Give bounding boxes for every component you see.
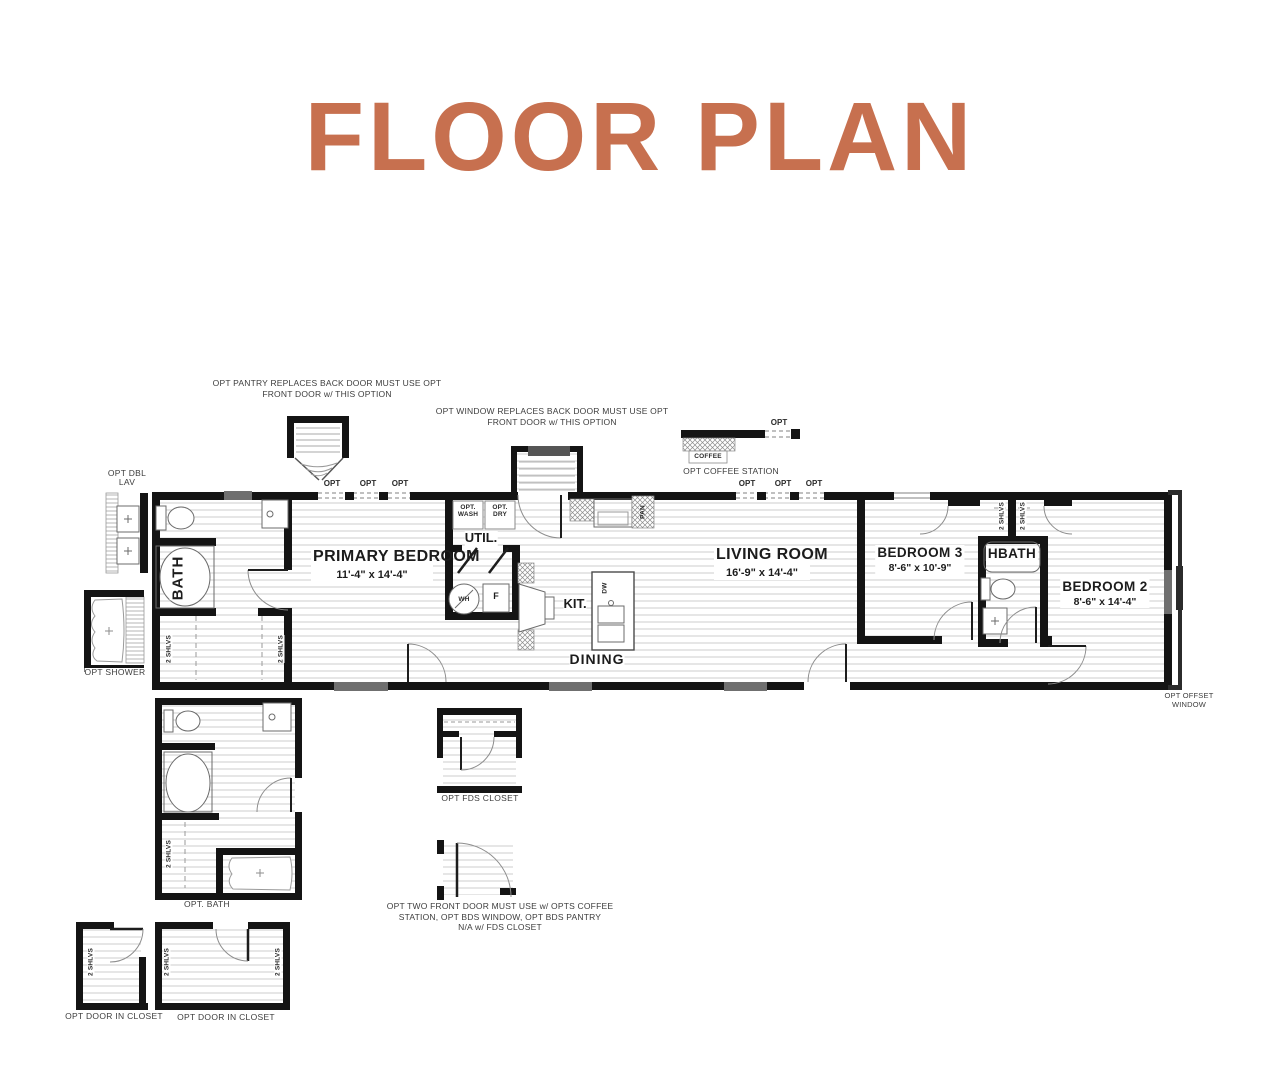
window-note: OPT WINDOW REPLACES BACK DOOR MUST USE O… bbox=[436, 406, 668, 427]
room-living: LIVING ROOM 16'-9" x 14'-4" bbox=[714, 546, 810, 580]
floor-textures bbox=[83, 450, 1165, 1003]
shelves-label: 2 SHLVS bbox=[278, 635, 285, 663]
pantry-option-detail bbox=[287, 416, 349, 480]
offset-window-note: OPT OFFSETWINDOW bbox=[1165, 691, 1214, 709]
shelves-label: 2 SHLVS bbox=[166, 840, 173, 868]
room-primary-bedroom: PRIMARY BEDROOM 11'-4" x 14'-4" bbox=[311, 548, 433, 582]
two-front-door-note: OPT TWO FRONT DOOR MUST USE w/ OPTS COFF… bbox=[387, 901, 613, 933]
opt-window-label: OPT bbox=[324, 479, 340, 488]
shelves-label: 2 SHLVS bbox=[1020, 502, 1027, 530]
shelves-label: 2 SHLVS bbox=[999, 502, 1006, 530]
room-kitchen: KIT. bbox=[563, 597, 586, 612]
dbl-lav-detail bbox=[117, 493, 148, 573]
room-util: UTIL. bbox=[465, 531, 498, 546]
opt-window-label: OPT bbox=[739, 479, 755, 488]
opt-wash-label: OPT. WASH bbox=[453, 504, 483, 519]
shelves-label: 2 SHLVS bbox=[166, 635, 173, 663]
coffee-label: COFFEE bbox=[694, 453, 722, 460]
pantry-note: OPT PANTRY REPLACES BACK DOOR MUST USE O… bbox=[213, 378, 442, 399]
opt-window-label: OPT bbox=[392, 479, 408, 488]
opt-window-label: OPT bbox=[775, 479, 791, 488]
opt-dry-label: OPT. DRY bbox=[485, 504, 515, 519]
room-bath: BATH bbox=[170, 556, 187, 601]
dishwasher-label: DW bbox=[602, 582, 609, 593]
room-bedroom3: BEDROOM 3 8'-6" x 10'-9" bbox=[875, 545, 964, 574]
dbl-lav-caption: OPT DBL LAV bbox=[103, 469, 151, 487]
water-heater-label: WH bbox=[458, 596, 469, 603]
shelves-label: 2 SHLVS bbox=[88, 948, 95, 976]
furnace-label: F bbox=[493, 591, 499, 601]
room-hbath: HBATH bbox=[986, 546, 1038, 561]
room-dining: DINING bbox=[570, 651, 625, 667]
opt-bath-caption: OPT. BATH bbox=[184, 900, 230, 910]
shelves-label: 2 SHLVS bbox=[164, 948, 171, 976]
room-bedroom2: BEDROOM 2 8'-6" x 14'-4" bbox=[1060, 579, 1149, 608]
door-closet-caption: OPT DOOR IN CLOSET bbox=[65, 1012, 163, 1022]
floor-plan-page: FLOOR PLAN bbox=[0, 0, 1284, 1069]
shower-caption: OPT SHOWER bbox=[85, 668, 146, 678]
shelves-label: 2 SHLVS bbox=[275, 948, 282, 976]
pantry-label: PAN bbox=[640, 505, 647, 519]
opt-window-label: OPT bbox=[360, 479, 376, 488]
coffee-station-note: OPT COFFEE STATION bbox=[683, 466, 779, 477]
fds-closet-caption: OPT FDS CLOSET bbox=[441, 794, 518, 804]
door-closet-caption: OPT DOOR IN CLOSET bbox=[177, 1013, 275, 1023]
opt-window-label: OPT bbox=[771, 418, 787, 427]
opt-window-label: OPT bbox=[806, 479, 822, 488]
